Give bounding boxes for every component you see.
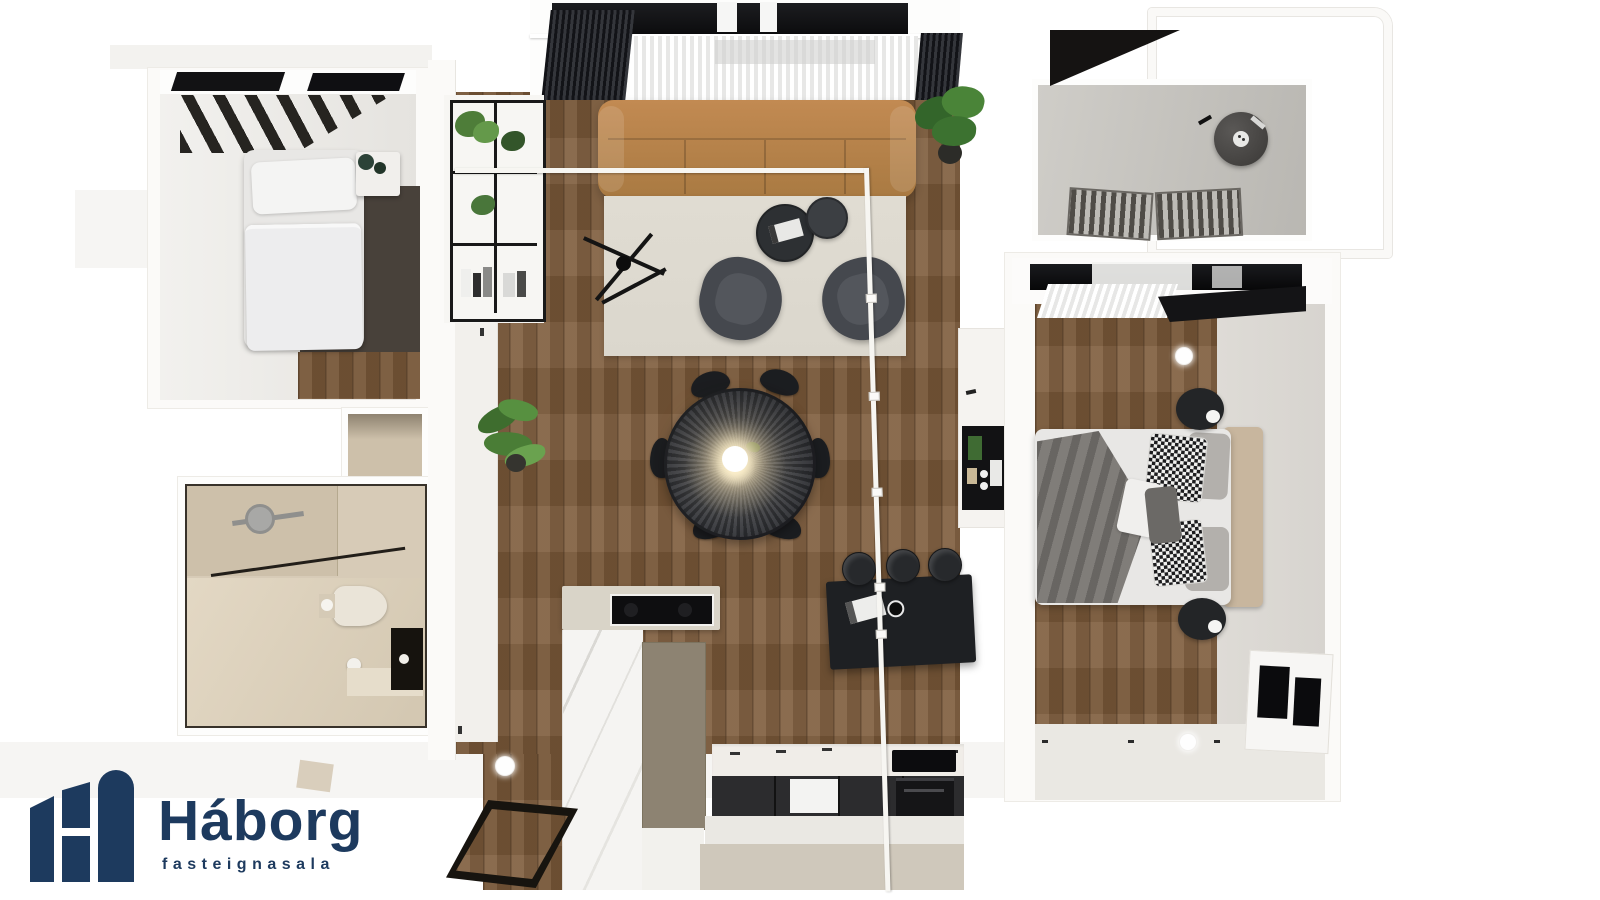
sofa-back-seam	[608, 138, 906, 140]
glass-partition-horizontal	[455, 168, 868, 173]
double-bed	[1035, 425, 1263, 610]
island-taupe-panel	[642, 642, 706, 830]
grill-vent-dot	[1242, 138, 1245, 141]
logo-mark-mid-top	[62, 782, 90, 828]
bar-stool	[886, 549, 920, 583]
stool-highlight	[1208, 620, 1222, 633]
annex-shadow	[348, 414, 422, 486]
induction-hob	[892, 750, 956, 772]
pendant-lamp-glow	[722, 446, 748, 472]
sofa-seam	[684, 140, 686, 194]
coffee-table-small	[806, 197, 848, 239]
armchair-seat	[833, 269, 894, 330]
lounge-chair	[1066, 187, 1153, 241]
glass-joint	[876, 630, 887, 639]
bg-band-top-left	[110, 45, 432, 69]
logo-mark-right-tower	[98, 770, 134, 882]
window-mullion	[717, 2, 737, 32]
toilet-button	[321, 599, 333, 611]
island-base	[642, 828, 704, 890]
panel-knob	[980, 470, 988, 478]
bathroom-floor	[187, 578, 425, 726]
grill-vent-dot	[1238, 135, 1241, 138]
bar-stool	[842, 552, 876, 586]
coffee-cup	[887, 600, 905, 618]
bar-counter	[826, 574, 976, 670]
armchair-seat	[711, 269, 772, 330]
island-cooktop	[610, 594, 714, 626]
wardrobe-handle	[1128, 740, 1134, 743]
master-side-window	[1244, 650, 1333, 754]
panel-switch	[990, 460, 1002, 486]
books	[461, 269, 471, 297]
dishwasher	[790, 779, 838, 813]
books	[483, 267, 492, 297]
glass-joint	[866, 294, 877, 303]
table-lamp-green	[374, 162, 386, 174]
oven-handle	[904, 789, 944, 792]
pillow	[251, 157, 358, 214]
sofa-armrest	[598, 106, 624, 192]
window-sheer-panel	[1212, 266, 1242, 288]
logo-mark-mid-bottom	[62, 836, 90, 882]
toilet	[319, 586, 389, 626]
wardrobe-handle	[1042, 740, 1048, 743]
shelf-plant	[501, 131, 525, 151]
sofa-seam	[844, 140, 846, 194]
kitchen-floor-strip	[705, 816, 964, 844]
table-lamp-green	[358, 154, 374, 170]
toilet-bowl	[333, 586, 387, 626]
brand-logo: Háborg fasteignasala	[30, 770, 450, 890]
magazine	[768, 218, 804, 244]
window-reflection	[715, 40, 875, 64]
ceiling-lamp	[1176, 348, 1192, 364]
glass-joint	[871, 488, 882, 497]
single-bed	[244, 150, 364, 348]
ceiling-lamp	[1180, 734, 1196, 750]
closet-handle	[480, 328, 484, 336]
sofa-seam	[764, 140, 766, 194]
grill-vent	[1233, 131, 1249, 147]
bbq-grill	[1214, 112, 1268, 166]
lamp-head	[616, 256, 631, 271]
living-window-band	[530, 0, 960, 100]
bathroom-annex	[348, 414, 422, 486]
pillow-dark	[1144, 485, 1182, 544]
brand-name: Háborg	[158, 788, 364, 854]
stool-highlight	[1206, 410, 1220, 423]
coffee-table-large	[756, 204, 814, 262]
faucet	[399, 654, 409, 664]
door-handle	[458, 726, 462, 734]
books	[503, 273, 515, 297]
closet-band	[455, 298, 498, 742]
sideboard-art-panel	[962, 426, 1004, 510]
dark-curtain-left	[541, 10, 634, 100]
duvet	[245, 223, 363, 351]
tripod-floor-lamp	[580, 222, 672, 316]
lamp-leg	[601, 267, 666, 304]
window-mullion	[760, 2, 777, 32]
drawer-handle	[730, 752, 740, 755]
small-bedroom-window	[160, 70, 416, 94]
window-pane	[171, 72, 285, 91]
panel-plant-picture	[968, 436, 982, 460]
master-sheer-curtain	[1037, 284, 1178, 318]
panel-beige-card	[967, 468, 977, 484]
lower-wall-band	[700, 844, 964, 890]
drawer-handle	[822, 748, 832, 751]
burner	[678, 603, 692, 617]
books	[473, 273, 481, 297]
bedroom-stool	[1176, 388, 1224, 430]
floor-plan: Háborg fasteignasala	[0, 0, 1600, 900]
bg-patch-left	[75, 190, 153, 268]
bedroom-wood-strip	[298, 352, 420, 399]
books	[517, 271, 526, 297]
brand-tagline: fasteignasala	[162, 856, 335, 874]
logo-mark-left-building	[30, 796, 54, 882]
glass-joint	[869, 392, 880, 401]
bar-stool	[928, 548, 962, 582]
glass-joint	[874, 583, 885, 592]
shelf-plant	[471, 195, 495, 215]
panel-knob	[980, 482, 988, 490]
lounge-chair	[1155, 188, 1243, 240]
bathroom	[185, 484, 427, 728]
shower-head	[245, 504, 275, 534]
entry-mat-inner	[456, 809, 568, 879]
ceiling-lamp	[496, 757, 514, 775]
bedroom-stool	[1178, 598, 1226, 640]
plant-pot	[506, 454, 526, 472]
window-pane	[307, 73, 405, 91]
window-pane	[1257, 665, 1290, 718]
drawer-handle	[776, 750, 786, 753]
entry-mat	[446, 800, 578, 888]
window-pane	[1293, 677, 1321, 726]
nightstand	[356, 152, 400, 196]
open-shelving-unit	[450, 100, 546, 322]
corner-plant	[912, 82, 990, 166]
oven	[896, 778, 954, 817]
burner	[624, 603, 638, 617]
wardrobe-handle	[1214, 740, 1220, 743]
floor-plant	[470, 398, 560, 494]
